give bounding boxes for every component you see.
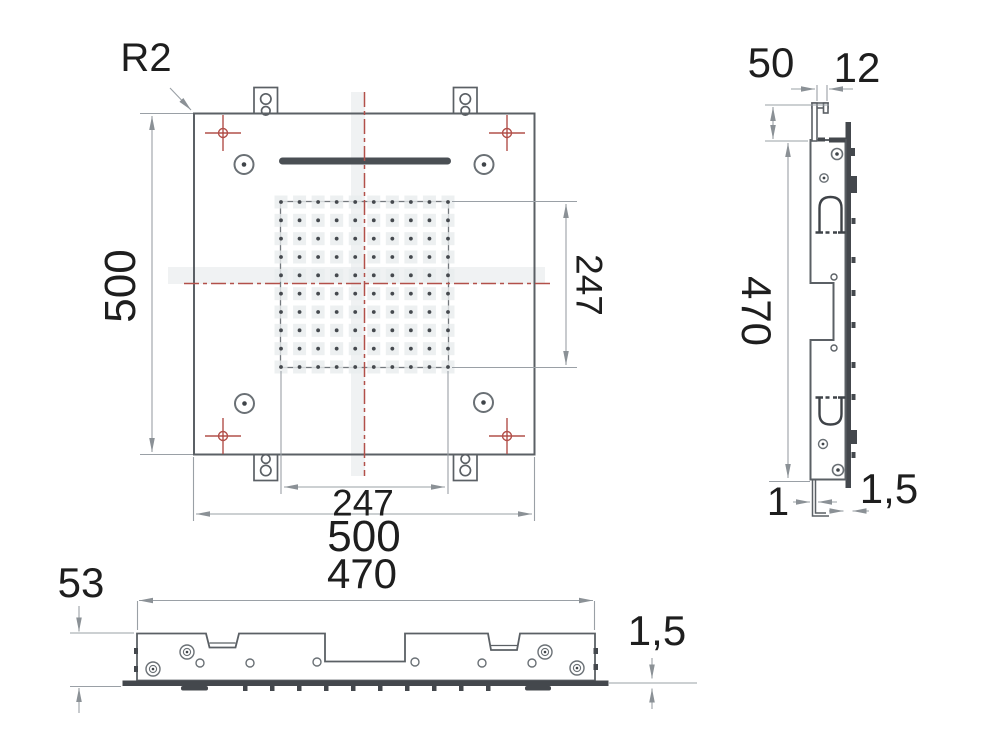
nozzle-dot [316,310,320,314]
nozzle-dot [279,218,283,222]
nozzle-dot [390,237,394,241]
nozzle-tick [852,257,856,263]
nozzle-dot [316,273,320,277]
nozzle-dot [409,292,413,296]
nozzle-dot [335,237,339,241]
lower-keyhole-slot [816,398,846,425]
nozzle-dot [390,365,394,369]
nozzle-dot [316,292,320,296]
front-width-dim-label: 470 [327,553,397,595]
nozzle-dot [335,310,339,314]
side-nozzle-ticks [851,148,857,458]
nozzle-tick [851,148,855,156]
nozzle-dot [353,273,357,277]
nozzle-dot [316,237,320,241]
nozzle-tick [243,686,248,691]
nozzle-tick [851,430,857,444]
front-nozzle-ticks [181,686,551,691]
r2-leader-line [170,88,191,110]
nozzle-tick [405,686,410,691]
nozzle-tick [486,686,491,691]
nozzle-dot [353,310,357,314]
nozzle-bar [181,686,208,691]
nozzle-dot [446,237,450,241]
nozzle-dot [279,273,283,277]
nozzle-dot [428,328,432,332]
nozzle-dot [353,255,357,259]
nozzle-dot [316,218,320,222]
nozzle-dot [279,255,283,259]
plan-view [140,88,577,522]
nozzle-dot [279,200,283,204]
front-panel-thickness-label: 1,5 [628,610,686,652]
nozzle-dot [372,218,376,222]
nozzle-tick [297,686,302,691]
nozzle-dot [372,328,376,332]
nozzle-dot [428,347,432,351]
nozzle-dot [298,218,302,222]
nozzle-dot [335,218,339,222]
nozzle-tick [270,686,275,691]
nozzle-dot [428,255,432,259]
nozzle-dot [298,237,302,241]
nozzle-dot [446,292,450,296]
nozzle-bar [525,686,551,691]
nozzle-dot [390,218,394,222]
nozzle-dot [298,328,302,332]
nozzle-dot [390,347,394,351]
nozzle-dot [298,292,302,296]
nozzle-dot [409,218,413,222]
nozzle-dot [298,365,302,369]
nozzle-dot [353,292,357,296]
nozzle-dot [446,273,450,277]
side-flange-thickness-label: 1 [767,482,789,522]
side-bracket-height-label: 50 [748,42,795,84]
front-view [70,601,697,714]
nozzle-tick [852,218,856,224]
nozzle-tick [852,362,856,368]
nozzle-dot [316,328,320,332]
nozzle-dot [335,292,339,296]
nozzle-dot [390,255,394,259]
nozzle-dot [279,310,283,314]
nozzle-dot [372,292,376,296]
nozzle-dot [279,365,283,369]
nozzle-tick [851,176,857,193]
nozzle-dot [372,365,376,369]
nozzle-dot [446,200,450,204]
nozzle-dot [298,255,302,259]
front-height-dim-label: 53 [58,562,105,604]
nozzle-dot [390,273,394,277]
nozzle-tick [351,686,356,691]
upper-keyhole-slot [816,197,846,233]
nozzle-dot [446,255,450,259]
nozzle-dot [279,237,283,241]
nozzle-dot [279,328,283,332]
nozzle-dot [409,328,413,332]
nozzle-dot [335,200,339,204]
nozzle-dot [446,310,450,314]
nozzle-dot [372,255,376,259]
nozzle-dot [335,273,339,277]
nozzle-dot [390,200,394,204]
drawing-svg [0,0,1000,742]
nozzle-dot [316,365,320,369]
bottom-flange [813,480,830,516]
nozzle-dot [409,237,413,241]
technical-drawing-canvas: R2 500 247 247 500 50 12 470 1 1,5 53 47… [0,0,1000,742]
nozzle-dot [372,273,376,277]
nozzle-dot [372,347,376,351]
nozzle-dot [298,310,302,314]
nozzle-dot [298,347,302,351]
nozzle-dot [298,200,302,204]
nozzle-dot [316,255,320,259]
nozzle-tick [432,686,437,691]
nozzle-dot [409,273,413,277]
nozzle-dot [446,328,450,332]
plan-corner-radius-label: R2 [120,38,171,78]
nozzle-dot [353,237,357,241]
nozzle-dot [428,310,432,314]
nozzle-dot [279,292,283,296]
nozzle-dot [353,200,357,204]
nozzle-dot [409,310,413,314]
nozzle-dot [353,347,357,351]
nozzle-dot [316,200,320,204]
nozzle-dot [409,347,413,351]
nozzle-dot [446,365,450,369]
nozzle-dot [428,273,432,277]
front-body-outline [137,634,595,681]
nozzle-dot [428,292,432,296]
nozzle-dot [372,237,376,241]
nozzle-dot [372,200,376,204]
nozzle-tick [378,686,383,691]
nozzle-dot [428,218,432,222]
nozzle-dot [409,365,413,369]
nozzle-dot [316,347,320,351]
nozzle-dot [390,328,394,332]
nozzle-tick [459,686,464,691]
nozzle-dot [353,328,357,332]
side-height-dim-label: 470 [735,276,777,346]
nozzle-dot [409,200,413,204]
nozzle-tick [852,394,856,400]
plan-height-dim-label: 500 [99,249,143,322]
side-view [765,85,869,516]
front-face-panel [123,681,609,687]
side-body-outline [811,140,846,480]
nozzle-dot [428,365,432,369]
nozzle-tick [852,290,856,296]
nozzle-tick [852,322,856,328]
nozzle-dot [446,347,450,351]
nozzle-dot [390,310,394,314]
nozzle-dot [298,273,302,277]
nozzle-dot [428,237,432,241]
nozzle-dot [279,347,283,351]
nozzle-dot [353,218,357,222]
nozzle-dot [428,200,432,204]
nozzle-dot [446,218,450,222]
nozzle-dot [372,310,376,314]
side-panel-thickness-label: 1,5 [860,468,918,510]
nozzle-dot [335,328,339,332]
top-bracket [812,103,828,141]
plan-nozzle-field-height-label: 247 [571,254,608,316]
nozzle-dot [335,255,339,259]
side-bracket-offset-label: 12 [834,47,881,89]
nozzle-dot [409,255,413,259]
nozzle-dot [335,365,339,369]
nozzle-dot [335,347,339,351]
nozzle-tick [324,686,329,691]
nozzle-dot [390,292,394,296]
nozzle-tick [852,452,856,458]
nozzle-dot [353,365,357,369]
